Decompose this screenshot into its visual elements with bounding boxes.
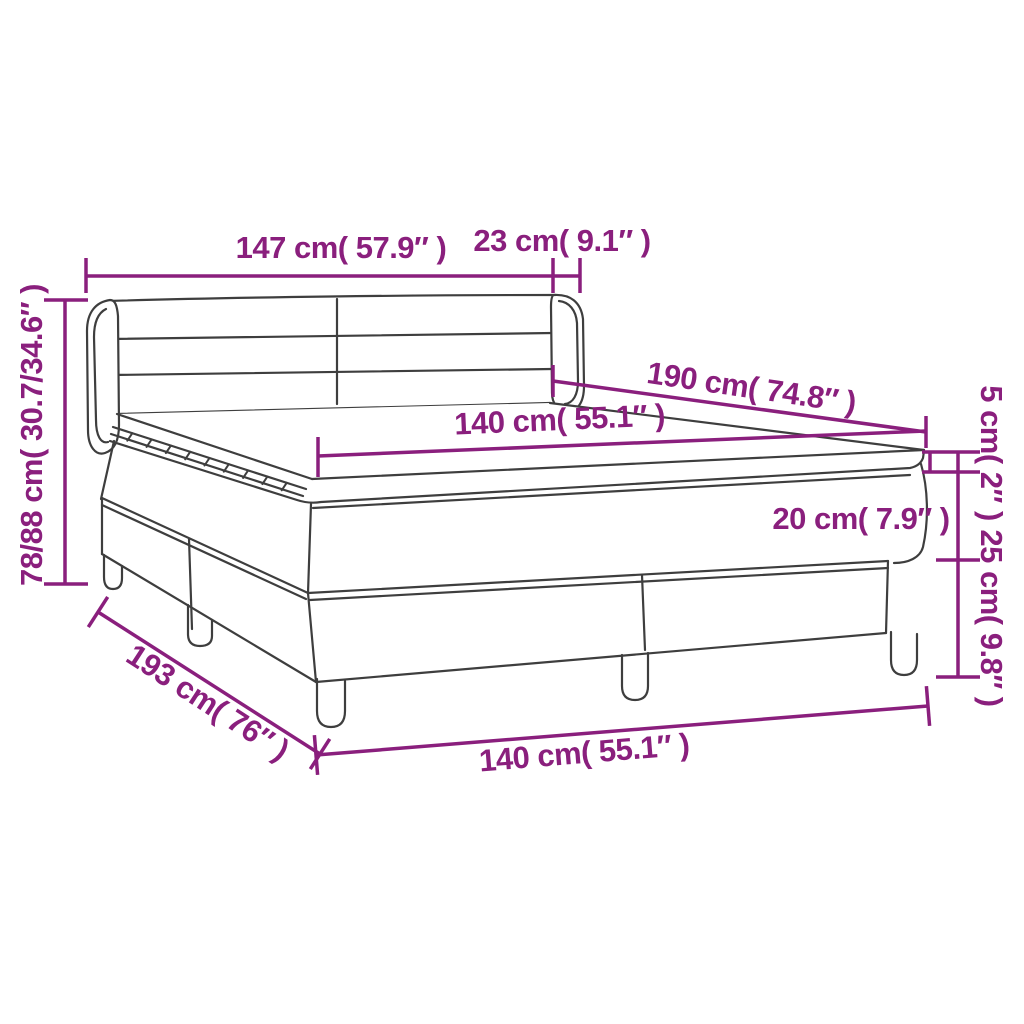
dim-label-headboard-depth: 23 cm( 9.1″ ) xyxy=(473,223,650,258)
dim-right-height-stack xyxy=(922,452,980,677)
dim-tick xyxy=(926,686,929,726)
dim-tick xyxy=(88,597,107,627)
base-left-top-edge xyxy=(102,498,308,593)
mattress-front-corner-edge xyxy=(308,504,311,593)
dim-tick xyxy=(314,735,317,775)
leg-front-corner xyxy=(317,679,345,727)
dimension-labels: 147 cm( 57.9″ ) 23 cm( 9.1″ ) 190 cm( 74… xyxy=(14,223,1009,778)
headboard-top-edge xyxy=(108,295,556,301)
base-foot-top-edge-2 xyxy=(310,568,888,600)
diagram-canvas: 147 cm( 57.9″ ) 23 cm( 9.1″ ) 190 cm( 74… xyxy=(0,0,1024,1024)
dim-label-base-height: 25 cm( 9.8″ ) xyxy=(974,529,1009,706)
dim-total-height xyxy=(44,300,88,584)
base-left-divider xyxy=(189,539,192,629)
dim-label-bed-length: 190 cm( 74.8″ ) xyxy=(645,355,859,420)
headboard-panel-line-1 xyxy=(110,333,553,339)
dim-label-total-height: 78/88 cm( 30.7/34.6″ ) xyxy=(14,284,49,586)
base-foot-top-edge xyxy=(308,561,888,593)
headboard-right-wing xyxy=(551,295,584,411)
leg-mid-front xyxy=(622,653,648,700)
dim-label-mattress-height: 20 cm( 7.9″ ) xyxy=(772,501,949,536)
dim-label-base-width: 140 cm( 55.1″ ) xyxy=(478,727,691,779)
dim-label-topper-height: 5 cm( 2″ ) xyxy=(974,385,1009,521)
base-foot-bottom-edge xyxy=(316,633,886,682)
base-foot-divider xyxy=(642,575,645,650)
dim-label-headboard-width: 147 cm( 57.9″ ) xyxy=(236,230,447,265)
dim-label-base-length: 193 cm( 76″ ) xyxy=(120,637,295,768)
leg-right xyxy=(891,632,917,675)
headboard-left-wing xyxy=(87,300,119,454)
base-right-edge xyxy=(886,561,888,633)
bed-dimension-diagram: 147 cm( 57.9″ ) 23 cm( 9.1″ ) 190 cm( 74… xyxy=(0,0,1024,1024)
base-left-top-edge-2 xyxy=(102,505,306,599)
base-front-corner-edge xyxy=(308,593,316,682)
headboard-panel-line-2 xyxy=(112,369,552,375)
